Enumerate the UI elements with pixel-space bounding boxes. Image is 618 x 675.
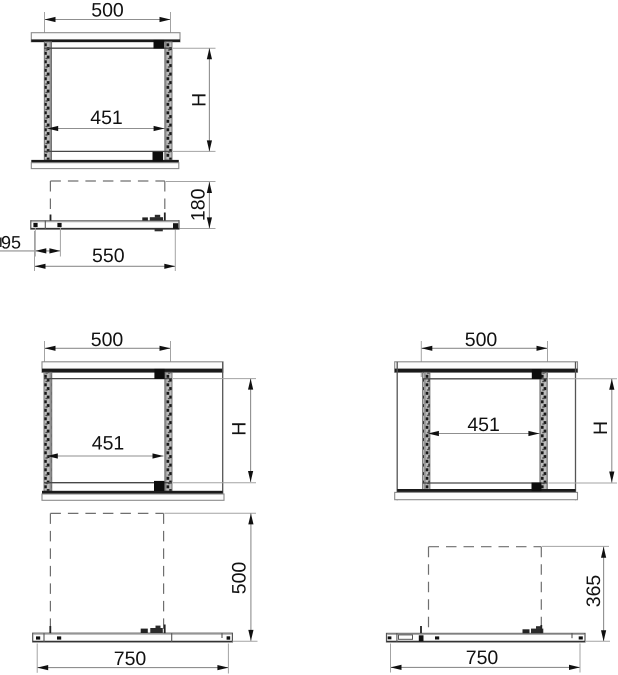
svg-text:180: 180	[187, 188, 209, 221]
svg-text:500: 500	[465, 329, 498, 351]
svg-text:365: 365	[583, 575, 605, 608]
svg-text:451: 451	[90, 107, 123, 129]
svg-text:750: 750	[466, 647, 499, 669]
svg-text:550: 550	[92, 245, 125, 267]
svg-text:H: H	[189, 93, 211, 107]
svg-text:500: 500	[229, 562, 251, 595]
svg-text:750: 750	[114, 648, 147, 670]
svg-text:95: 95	[1, 232, 21, 252]
svg-text:H: H	[590, 421, 612, 435]
svg-text:500: 500	[91, 0, 124, 22]
svg-text:451: 451	[92, 432, 125, 454]
svg-text:H: H	[229, 422, 251, 436]
svg-text:451: 451	[467, 414, 500, 436]
svg-text:500: 500	[91, 329, 124, 351]
